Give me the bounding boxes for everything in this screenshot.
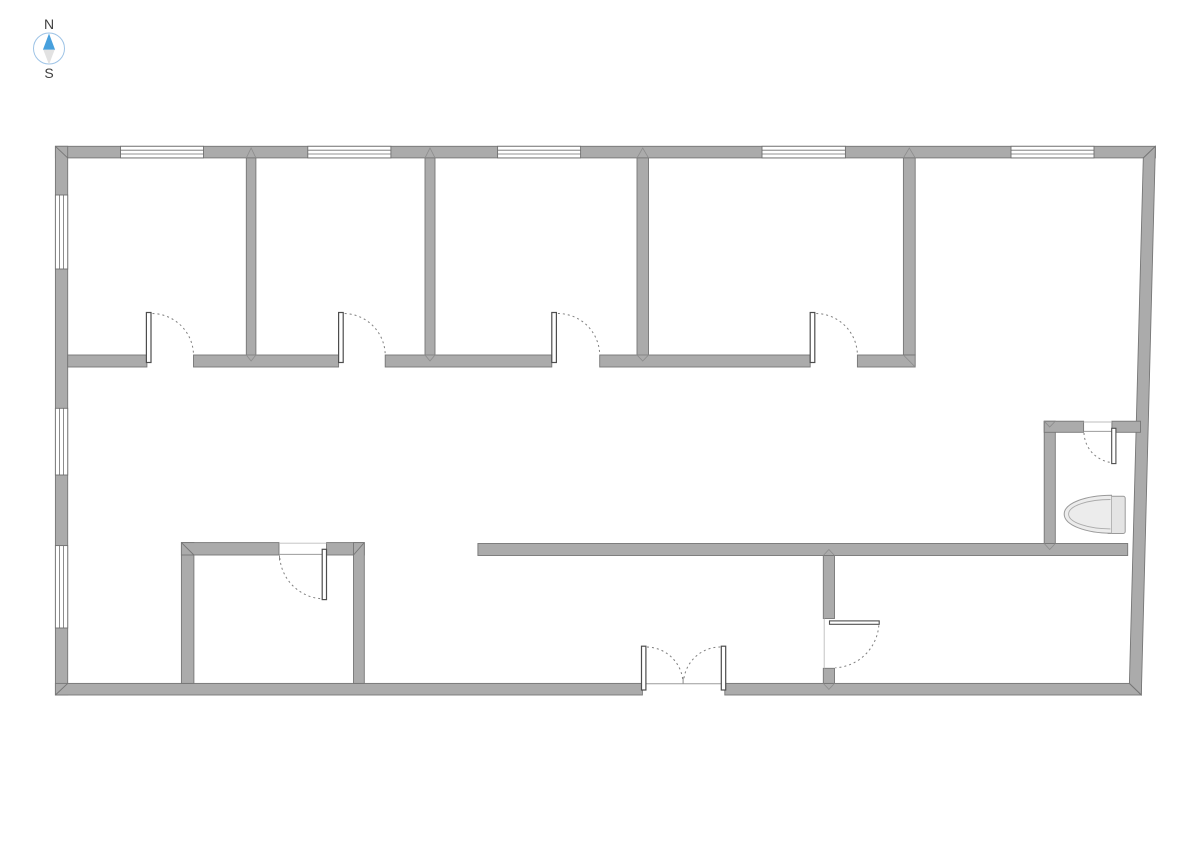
- svg-text:S: S: [44, 65, 53, 81]
- svg-text:N: N: [44, 16, 54, 32]
